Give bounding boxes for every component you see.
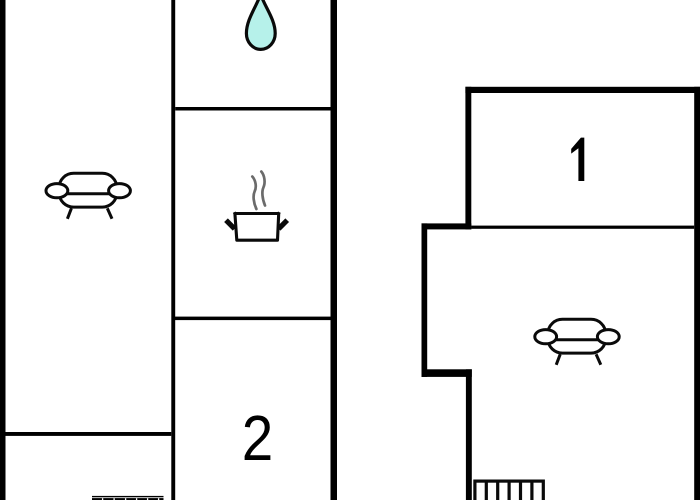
svg-text:2: 2 xyxy=(242,402,274,474)
